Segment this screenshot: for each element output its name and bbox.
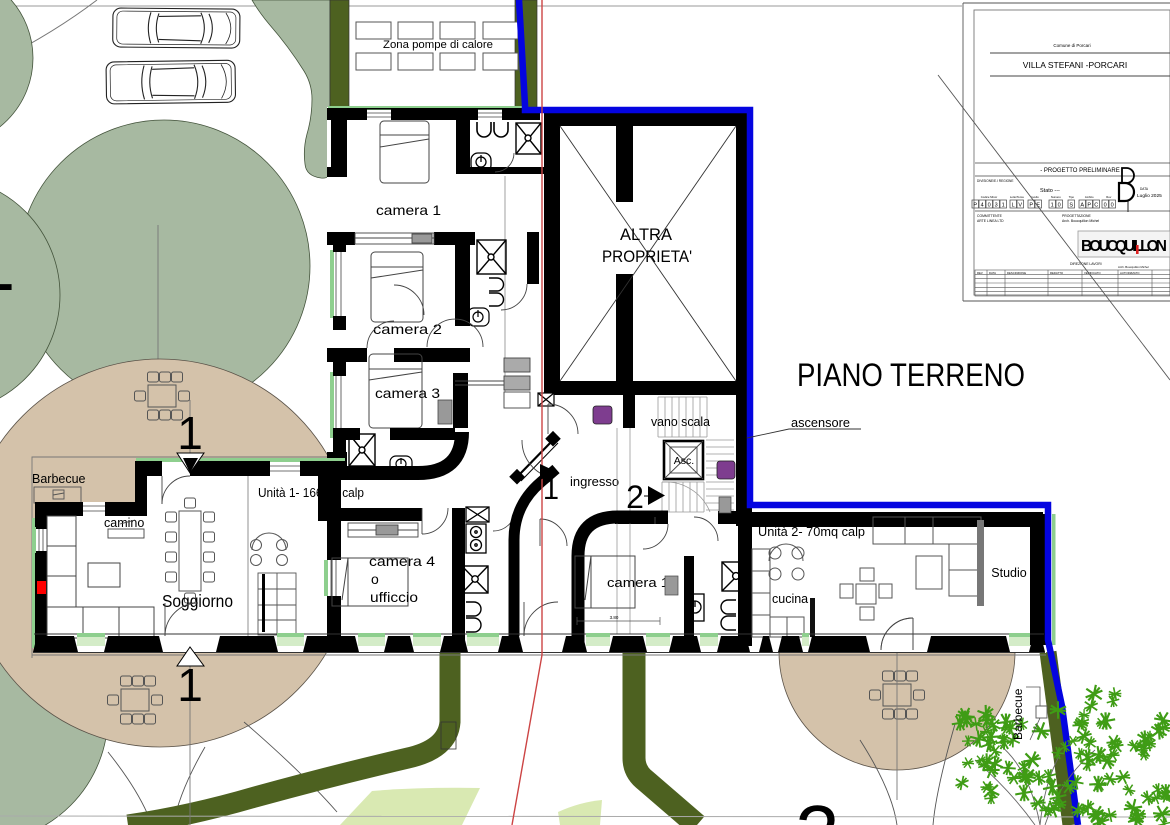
svg-text:Asc.: Asc.: [674, 455, 694, 467]
svg-text:VERIFICATO: VERIFICATO: [1084, 271, 1101, 275]
svg-text:ARTE LINEA LTD: ARTE LINEA LTD: [977, 219, 1004, 223]
svg-text:1: 1: [0, 219, 15, 307]
svg-text:camera 1: camera 1: [376, 202, 441, 218]
svg-text:Rev: Rev: [1106, 195, 1112, 199]
svg-text:PROGETTAZIONE: PROGETTAZIONE: [1062, 214, 1091, 218]
svg-text:COMMITTENTE: COMMITTENTE: [977, 214, 1003, 218]
svg-text:Zona pompe di calore: Zona pompe di calore: [383, 39, 493, 51]
svg-text:Barbecue: Barbecue: [1011, 688, 1025, 740]
svg-text:1: 1: [1051, 203, 1054, 209]
svg-text:S: S: [1069, 203, 1073, 209]
svg-text:Tipo: Tipo: [1069, 195, 1075, 199]
svg-text:vano scala: vano scala: [651, 415, 710, 429]
svg-text:PROPRIETA': PROPRIETA': [602, 248, 692, 266]
svg-text:VILLA STEFANI -PORCARI: VILLA STEFANI -PORCARI: [1023, 60, 1127, 70]
svg-text:PIANO TERRENO: PIANO TERRENO: [797, 357, 1025, 393]
svg-text:ALTRA: ALTRA: [620, 226, 672, 244]
svg-text:0: 0: [1111, 203, 1114, 209]
svg-text:Unità 2- 70mq calp: Unità 2- 70mq calp: [758, 525, 865, 539]
svg-text:P: P: [973, 203, 977, 209]
svg-text:ufficcio: ufficcio: [370, 589, 418, 605]
svg-text:1: 1: [177, 407, 203, 459]
svg-text:Numero: Numero: [1051, 195, 1061, 199]
svg-text:0: 0: [1058, 203, 1061, 209]
svg-text:L: L: [1012, 203, 1015, 209]
svg-text:0: 0: [988, 203, 991, 209]
svg-text:ingresso: ingresso: [570, 474, 619, 489]
svg-text:- PROGETTO PRELIMINARE: - PROGETTO PRELIMINARE: [1040, 168, 1120, 174]
svg-text:Lotto/Tema: Lotto/Tema: [1010, 195, 1024, 199]
svg-text:BOUCQUILLON: BOUCQUILLON: [1081, 238, 1167, 255]
svg-text:o: o: [371, 571, 379, 587]
svg-text:Comune di Porcari: Comune di Porcari: [1053, 43, 1090, 48]
svg-text:Arch. Boucquillon Michel: Arch. Boucquillon Michel: [1118, 265, 1149, 269]
svg-text:3.80: 3.80: [610, 615, 619, 620]
svg-text:1: 1: [177, 659, 203, 711]
svg-text:0: 0: [1104, 203, 1107, 209]
svg-text:REV: REV: [977, 271, 983, 275]
svg-text:2: 2: [626, 479, 644, 515]
svg-text:A: A: [1080, 203, 1084, 209]
svg-text:ascensore: ascensore: [791, 416, 850, 430]
svg-text:Luglio 2025: Luglio 2025: [1137, 193, 1162, 199]
svg-text:Ambito: Ambito: [1085, 195, 1094, 199]
svg-text:Soggiorno: Soggiorno: [162, 591, 233, 611]
svg-text:Arch. Boucquillon Michel: Arch. Boucquillon Michel: [1062, 219, 1099, 223]
svg-text:DESCRIZIONE: DESCRIZIONE: [1007, 271, 1026, 275]
svg-text:Unità 1- 166mq calp: Unità 1- 166mq calp: [258, 486, 364, 500]
svg-text:DATA: DATA: [989, 271, 996, 275]
svg-text:3: 3: [995, 203, 998, 209]
svg-text:Studio: Studio: [991, 566, 1026, 580]
svg-text:4: 4: [981, 203, 984, 209]
svg-text:P: P: [1087, 203, 1091, 209]
svg-text:V: V: [1018, 203, 1022, 209]
svg-text:P: P: [1029, 203, 1033, 209]
svg-text:DATA: DATA: [1140, 187, 1149, 191]
svg-text:1: 1: [1002, 203, 1005, 209]
svg-text:camera 1: camera 1: [607, 575, 669, 590]
svg-text:DIVISIONE/E.I REGIONE: DIVISIONE/E.I REGIONE: [977, 179, 1014, 183]
svg-text:Barbecue: Barbecue: [32, 472, 86, 486]
svg-text:REDATTO: REDATTO: [1050, 271, 1064, 275]
svg-text:camera 3: camera 3: [375, 385, 440, 401]
svg-text:camera 4: camera 4: [369, 553, 435, 569]
svg-text:C: C: [1094, 203, 1098, 209]
svg-text:2: 2: [795, 789, 840, 825]
svg-text:cucina: cucina: [772, 592, 808, 606]
svg-text:1: 1: [543, 474, 559, 506]
svg-text:Stato ---: Stato ---: [1040, 188, 1060, 194]
svg-text:DIREZIONE LAVORI: DIREZIONE LAVORI: [1070, 262, 1102, 266]
svg-text:Codice Minor: Codice Minor: [981, 195, 998, 199]
svg-text:AUTORIZZATO: AUTORIZZATO: [1120, 271, 1140, 275]
